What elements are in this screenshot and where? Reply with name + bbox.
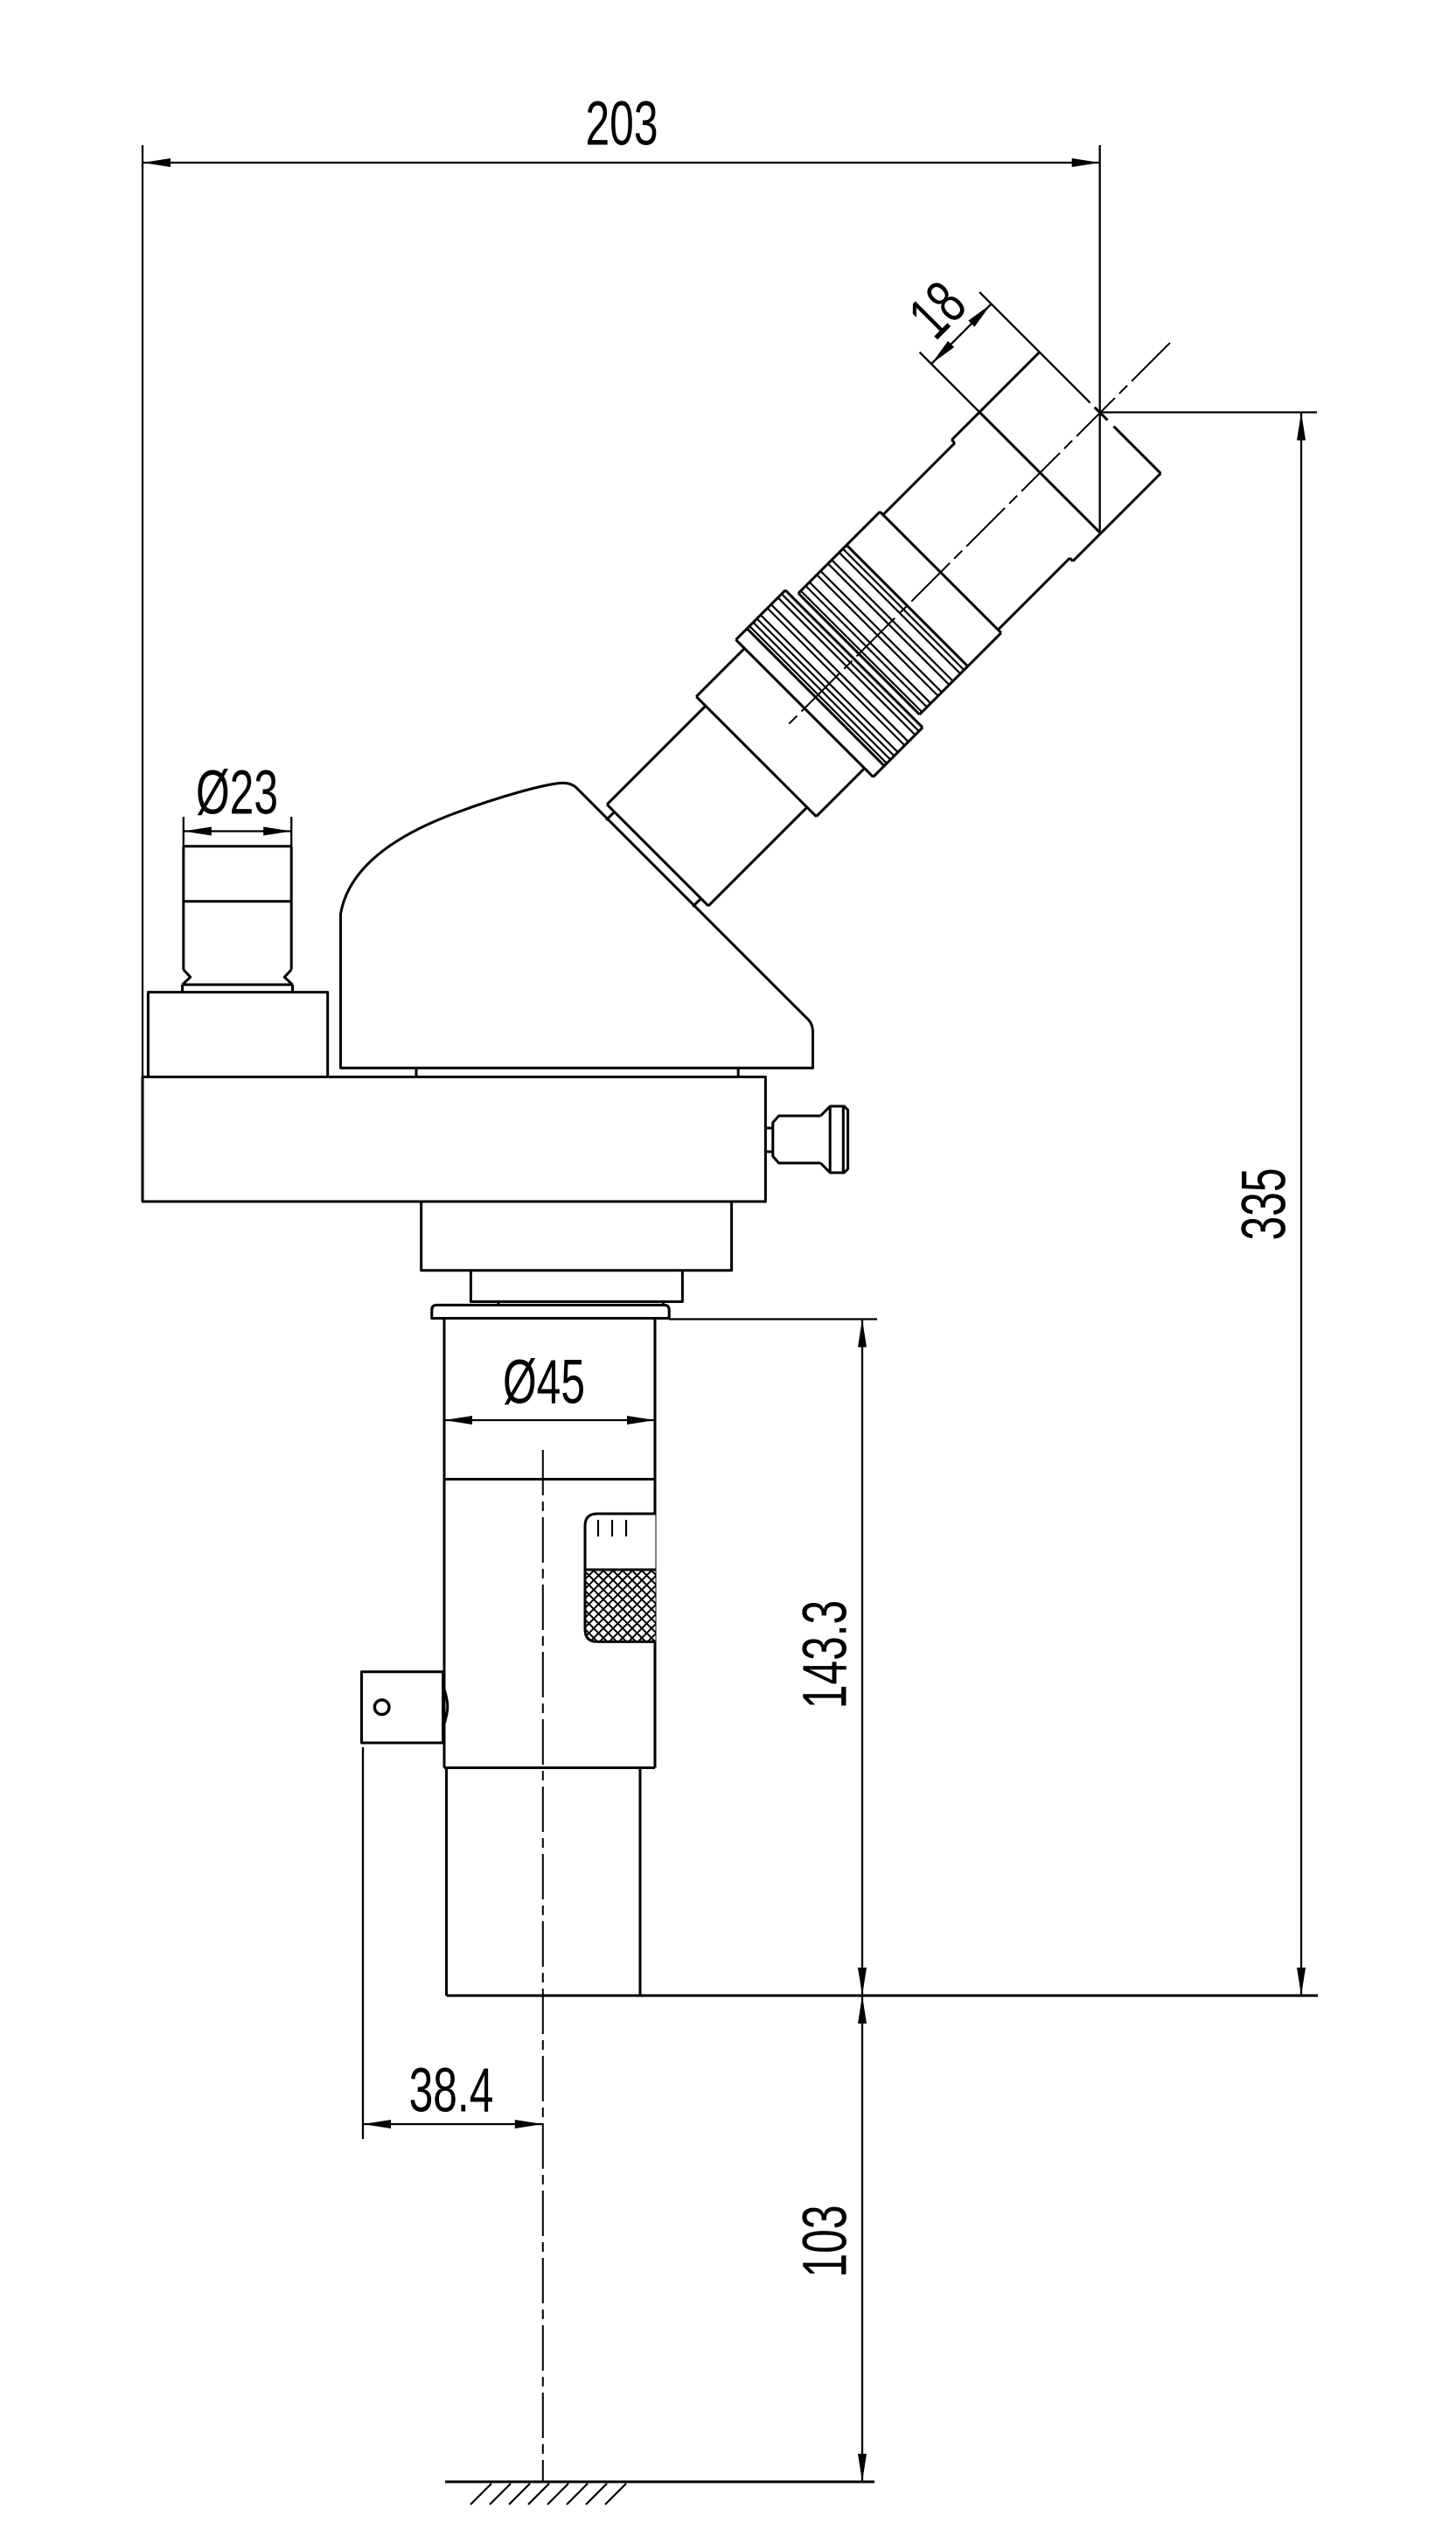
svg-text:203: 203 [586,89,658,158]
svg-text:335: 335 [1230,1168,1299,1241]
svg-text:Ø23: Ø23 [196,758,278,827]
svg-text:Ø45: Ø45 [503,1348,585,1417]
svg-text:38.4: 38.4 [409,2056,494,2125]
svg-text:103: 103 [791,2205,860,2278]
svg-text:143.3: 143.3 [791,1600,860,1709]
